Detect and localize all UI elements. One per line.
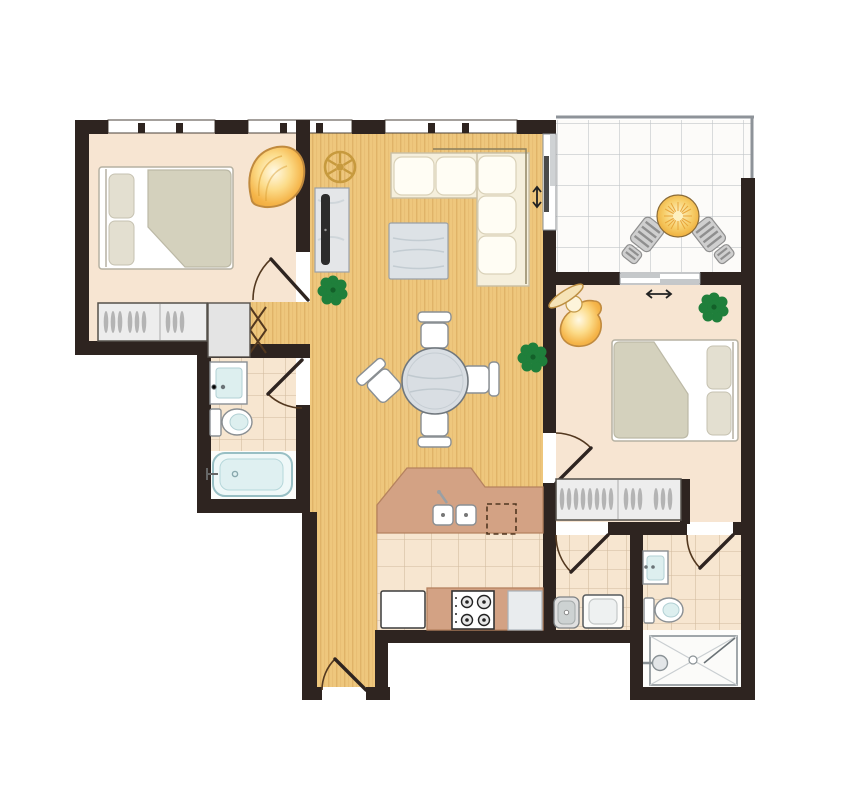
vanity-basin-1 — [210, 362, 247, 404]
sliding-panel-light — [550, 134, 555, 186]
gas-cooktop — [452, 591, 494, 629]
dining-chair-bottom — [418, 411, 451, 447]
sofa-cushion — [436, 157, 476, 195]
hallway-floor — [310, 505, 377, 687]
dining-chair-top — [418, 312, 451, 348]
floor-plan-canvas — [0, 0, 851, 800]
bathtub — [206, 453, 292, 496]
toilet-1 — [210, 409, 252, 436]
bed-double-1 — [99, 167, 233, 269]
sofa-cushion — [478, 156, 516, 194]
washing-machine — [583, 595, 623, 628]
wardrobe-bedroom-2 — [556, 479, 681, 520]
laundry — [554, 595, 623, 628]
wardrobe-bedroom-1 — [98, 303, 207, 341]
fridge — [381, 591, 425, 628]
sofa-cushion — [478, 196, 516, 234]
counter-appliance — [508, 591, 542, 630]
pillow — [109, 221, 134, 265]
vanity-basin-2 — [643, 551, 668, 584]
shower — [643, 636, 737, 685]
pillow — [109, 174, 134, 218]
balcony-table — [657, 195, 699, 237]
pillow — [707, 392, 731, 435]
toilet-2 — [644, 598, 683, 623]
sofa-cushion — [478, 236, 516, 274]
sliding-panel — [660, 279, 699, 283]
sofa-cushion — [394, 157, 434, 195]
shower-head-icon — [653, 656, 668, 671]
dining-table — [402, 348, 468, 414]
sliding-panel — [621, 274, 660, 278]
sliding-panel-dark — [544, 156, 549, 212]
pillow — [707, 346, 731, 389]
tv-unit — [315, 188, 349, 272]
windows — [108, 120, 517, 133]
laundry-sink — [554, 597, 579, 628]
coffee-table — [389, 223, 448, 279]
window-bedroom-1 — [108, 120, 215, 133]
floor-plan — [0, 0, 851, 800]
bed-double-2 — [612, 340, 738, 441]
hall-closet — [208, 303, 250, 357]
window-living-right — [385, 120, 517, 133]
